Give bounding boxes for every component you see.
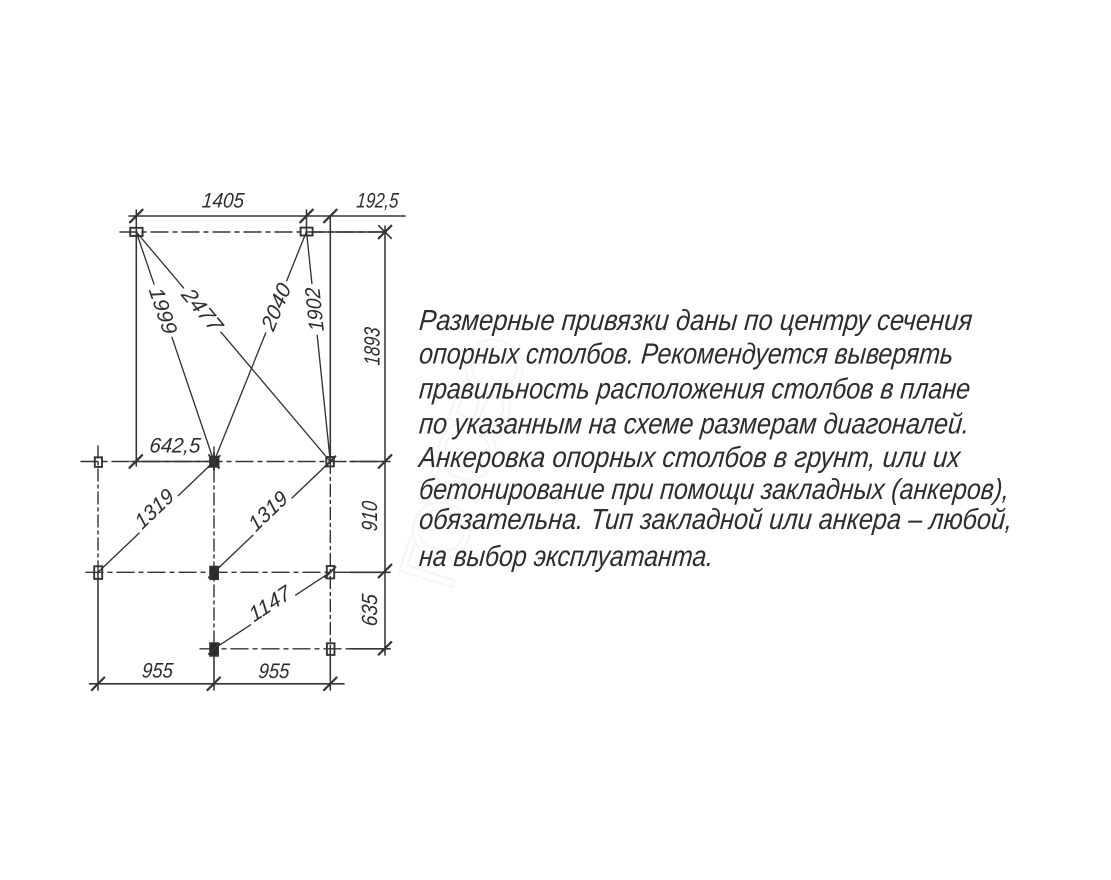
svg-text:Размерные привязки даны по цен: Размерные привязки даны по центру сечени… [418,305,974,337]
svg-text:955: 955 [258,660,291,683]
svg-text:бетонирование при помощи закла: бетонирование при помощи закладных (анке… [418,474,1011,506]
svg-text:910: 910 [357,499,382,532]
svg-text:1319: 1319 [131,484,179,534]
svg-text:2040: 2040 [257,279,296,335]
svg-text:955: 955 [141,660,174,683]
svg-text:1319: 1319 [244,486,292,536]
svg-text:на выбор эксплуатанта.: на выбор эксплуатанта. [418,541,715,573]
svg-text:1999: 1999 [144,285,182,336]
svg-text:1147: 1147 [245,581,295,627]
svg-text:по указанным на схеме размерам: по указанным на схеме размерам диагонале… [418,409,971,441]
svg-text:642,5: 642,5 [149,435,202,458]
svg-text:обязательна. Тип закладной или: обязательна. Тип закладной или анкера – … [418,504,1014,536]
svg-text:1893: 1893 [360,326,385,367]
svg-text:1902: 1902 [301,287,329,331]
svg-text:Анкеровка опорных столбов в гр: Анкеровка опорных столбов в грунт, или и… [416,442,963,474]
svg-text:192,5: 192,5 [356,190,400,213]
svg-text:правильность расположения стол: правильность расположения столбов в план… [418,374,972,406]
svg-text:1405: 1405 [201,190,245,213]
svg-text:635: 635 [357,592,382,627]
svg-text:опорных столбов. Рекомендуется: опорных столбов. Рекомендуется выверять [418,339,955,371]
svg-text:2477: 2477 [176,284,229,337]
